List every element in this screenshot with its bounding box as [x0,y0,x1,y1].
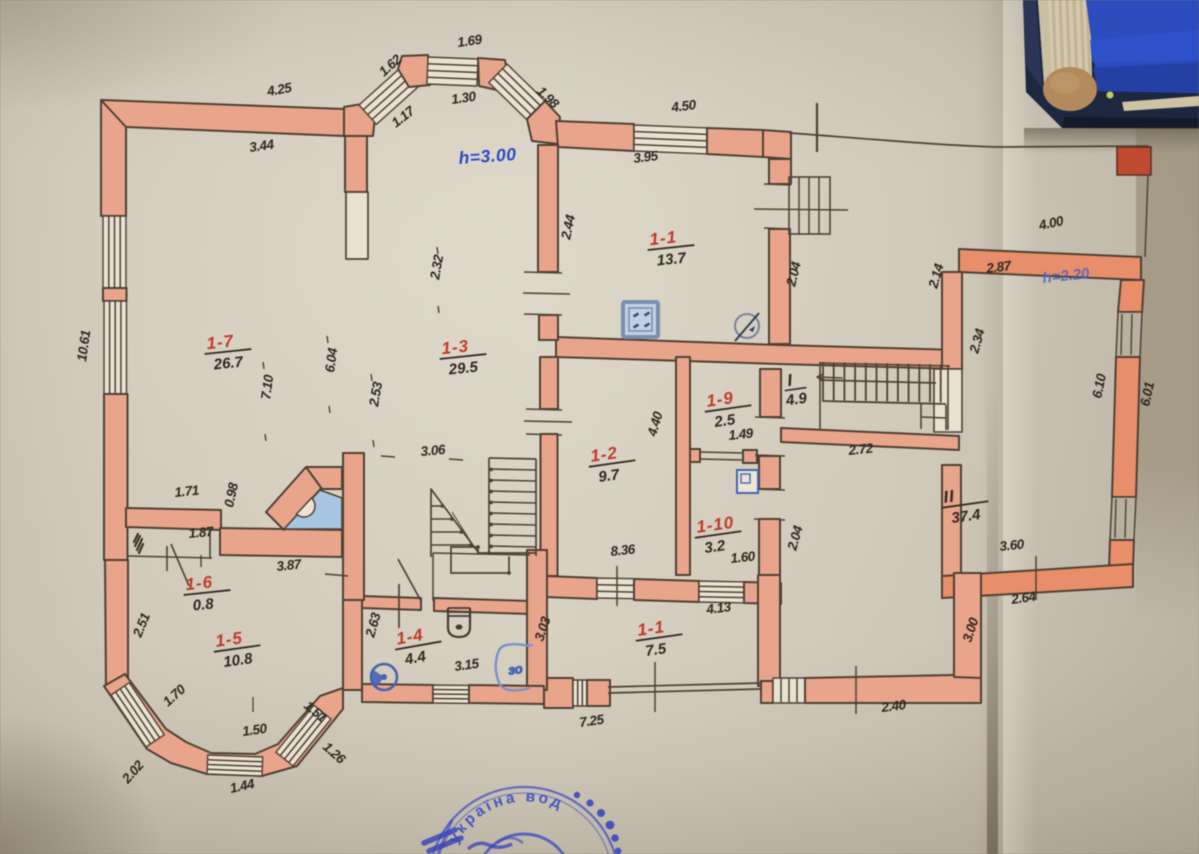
svg-text:3.87: 3.87 [276,556,304,574]
svg-text:3.06: 3.06 [420,442,446,459]
svg-text:9.7: 9.7 [597,466,621,486]
svg-text:3.2: 3.2 [703,537,727,557]
svg-text:4.50: 4.50 [670,97,698,115]
svg-text:7.5: 7.5 [644,640,668,660]
svg-text:h=3.00: h=3.00 [458,144,517,168]
svg-text:2.72: 2.72 [847,440,875,458]
svg-text:26.7: 26.7 [212,354,244,374]
svg-text:4.9: 4.9 [784,390,809,410]
svg-text:3.60: 3.60 [999,536,1026,554]
svg-text:1.49: 1.49 [728,425,755,443]
svg-text:4.13: 4.13 [705,599,733,617]
svg-text:1-3: 1-3 [441,336,470,358]
svg-text:3.95: 3.95 [633,148,660,166]
svg-text:2.40: 2.40 [880,697,908,715]
svg-text:1-1: 1-1 [649,227,678,249]
svg-text:1.87: 1.87 [188,524,215,541]
svg-text:8.36: 8.36 [610,541,637,559]
svg-text:зо: зо [507,661,523,678]
svg-text:13.7: 13.7 [656,250,687,270]
svg-text:0.8: 0.8 [192,595,215,614]
svg-text:1.71: 1.71 [174,483,200,500]
svg-text:1.60: 1.60 [730,548,757,566]
svg-text:1-6: 1-6 [185,572,214,594]
svg-text:29.5: 29.5 [447,359,479,379]
svg-text:1-7: 1-7 [206,331,236,353]
